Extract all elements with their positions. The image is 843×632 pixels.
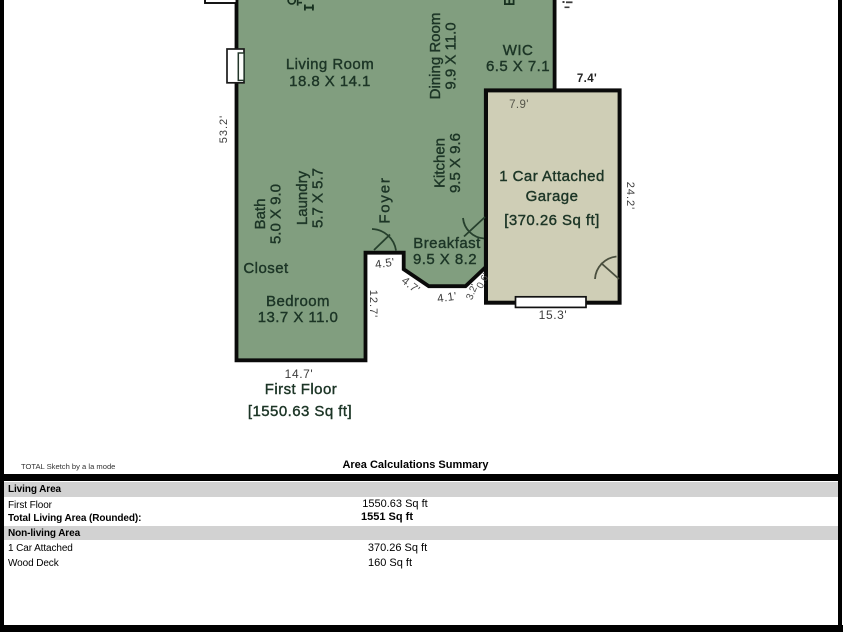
svg-text:15.3': 15.3' bbox=[539, 308, 568, 322]
svg-text:Garage: Garage bbox=[526, 188, 579, 205]
svg-text:53.2': 53.2' bbox=[218, 115, 230, 144]
svg-text:5.0 X 9.0: 5.0 X 9.0 bbox=[267, 184, 284, 244]
svg-text:4.1': 4.1' bbox=[437, 291, 458, 306]
svg-text:9.5 X 9.6: 9.5 X 9.6 bbox=[447, 133, 464, 193]
svg-text:Closet: Closet bbox=[243, 260, 289, 277]
svg-text:Breakfast: Breakfast bbox=[413, 235, 481, 252]
svg-text:Foyer: Foyer bbox=[377, 176, 394, 223]
svg-text:24.2': 24.2' bbox=[624, 182, 636, 211]
svg-text:6.5 X 7.1: 6.5 X 7.1 bbox=[486, 58, 550, 75]
svg-text:12.7': 12.7' bbox=[367, 290, 379, 319]
svg-text:7.4': 7.4' bbox=[577, 73, 597, 85]
svg-text:5.7 X 5.7: 5.7 X 5.7 bbox=[309, 168, 326, 228]
svg-text:Living Room: Living Room bbox=[286, 56, 374, 73]
svg-text:13.7 X 11.0: 13.7 X 11.0 bbox=[258, 309, 339, 326]
svg-text:18.8 X 14.1: 18.8 X 14.1 bbox=[289, 73, 371, 90]
svg-text:First Floor: First Floor bbox=[265, 381, 337, 398]
svg-text:[1550.63 Sq ft]: [1550.63 Sq ft] bbox=[248, 403, 352, 420]
svg-text:4.5': 4.5' bbox=[374, 257, 395, 272]
svg-text:9.5 X 8.2: 9.5 X 8.2 bbox=[413, 251, 477, 268]
svg-text:WIC: WIC bbox=[503, 42, 534, 59]
svg-text:Bedroom: Bedroom bbox=[266, 293, 330, 310]
svg-text:14.7': 14.7' bbox=[285, 367, 314, 381]
svg-text:[370.26 Sq ft]: [370.26 Sq ft] bbox=[504, 212, 600, 229]
svg-text:9.9 X 11.0: 9.9 X 11.0 bbox=[442, 22, 459, 89]
svg-text:1 Car Attached: 1 Car Attached bbox=[499, 168, 605, 185]
svg-text:7.9': 7.9' bbox=[509, 99, 529, 111]
